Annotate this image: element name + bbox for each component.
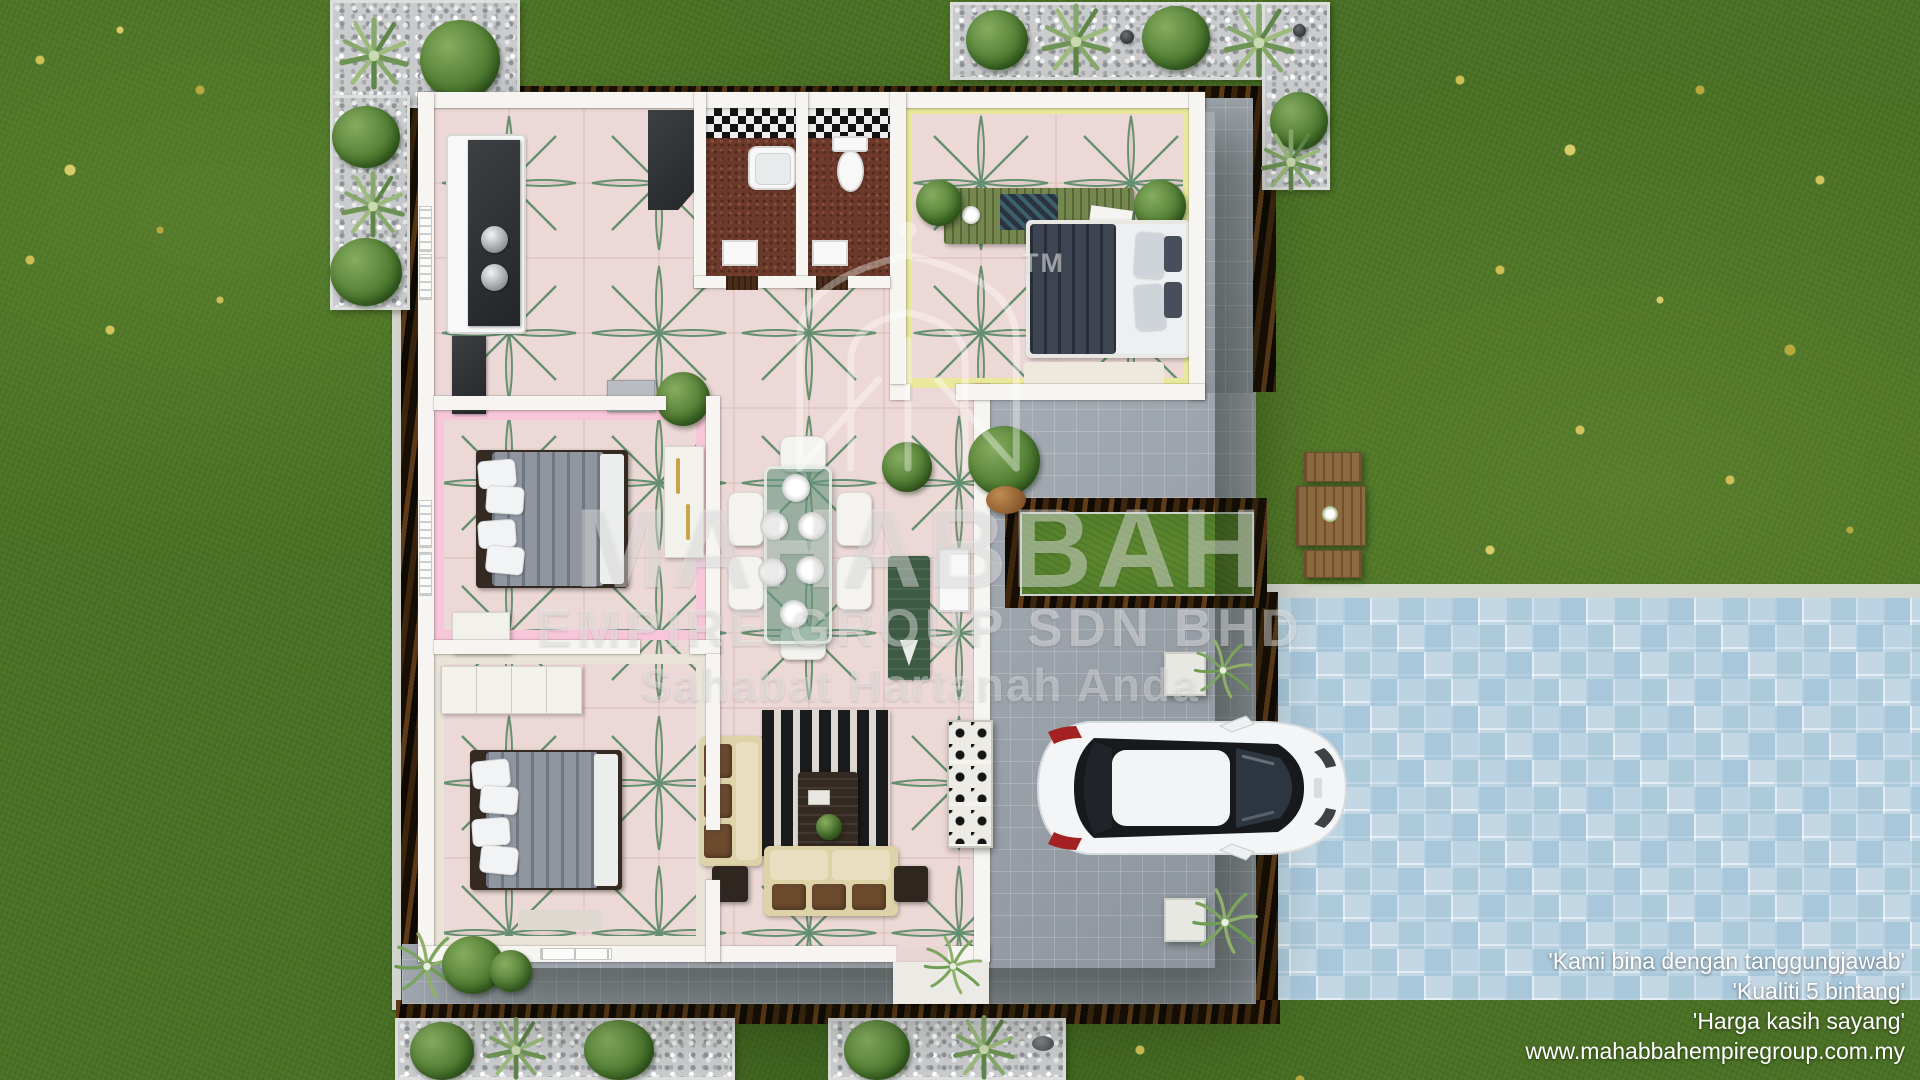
palm-plant [1188,884,1262,958]
bed-cushion [1164,236,1182,272]
garden-bush [332,106,400,168]
wall-pink-bedroom-top [434,396,666,410]
sofa-left-seat [736,742,758,860]
agave-plant [1220,0,1298,78]
footer-tagline-2: 'Kualiti 5 bintang' [1525,976,1905,1006]
footer-tagline-1: 'Kami bina dengan tanggungjawab' [1525,946,1905,976]
garden-bush [330,238,402,306]
outdoor-patterned-bench [947,720,993,848]
rear-bedroom-sheet [594,754,618,886]
bathtub-basin [755,153,791,185]
watermark-trademark: TM [1022,248,1065,279]
wall-yellow-bedroom-right [1189,92,1205,400]
agave-plant [1038,0,1114,76]
wall-exterior-top [418,92,1205,108]
watermark-brand: MAHABBAH [520,484,1320,613]
bed-pillow [485,485,525,516]
picnic-table-flowerpot [1322,506,1338,522]
wall-rear-bedroom-right [706,880,720,962]
agave-plant [336,14,412,90]
kitchen-window [419,254,432,300]
bed-cushion [1164,282,1182,318]
wall-bathroom-left [694,92,706,288]
pink-bedroom-window [419,500,432,548]
toilet-bowl [837,150,864,192]
garden-stone [1032,1036,1054,1051]
driveway-blue-tiles [1262,598,1920,1000]
sofa-backrest [832,850,890,880]
garden-bush [410,1022,474,1080]
garden-light-bollard [1293,24,1306,37]
bed-pillow [1132,231,1165,279]
bed-pillow [479,844,520,876]
garden-bush [844,1020,910,1080]
watermark-brand-line2: EMPIRE GROUP SDN BHD [520,598,1320,659]
watermark-logo [758,222,1058,478]
garden-light-bollard [1120,30,1134,44]
bed-pillow [1132,283,1165,331]
bathroom-1-door-threshold [726,276,758,290]
porch-bush [490,950,532,992]
bathroom-1-checker-wall [706,108,796,138]
garden-bush [420,20,500,100]
footer-taglines: 'Kami bina dengan tanggungjawab' 'Kualit… [1525,946,1905,1066]
bed-pillow [479,784,519,815]
wall-bathroom-bottom [694,276,726,288]
rear-bedroom-window [540,948,612,960]
footer-website: www.mahabbahempiregroup.com.my [1525,1036,1905,1066]
garden-bush [584,1020,654,1080]
aerial-house-render: TM MAHABBAH EMPIRE GROUP SDN BHD Sahabat… [0,0,1920,1080]
sofa-cushion [852,884,886,910]
sofa-backrest [770,850,828,880]
agave-plant [338,168,408,238]
agave-plant [476,1014,556,1080]
sofa-cushion [772,884,806,910]
footer-tagline-3: 'Harga kasih sayang' [1525,1006,1905,1036]
cooking-pot [481,226,508,253]
bedroom-plant [916,180,962,226]
white-car [1028,714,1350,862]
kitchen-window [419,206,432,252]
bed-pillow [471,817,511,848]
coffee-table-book [808,790,830,805]
rear-bedroom-rug [518,910,602,930]
garden-bush [1142,6,1210,70]
cooking-pot [481,264,508,291]
agave-plant [1258,126,1324,192]
driveway-curb [1262,584,1920,598]
palm-plant [920,932,986,998]
picnic-bench-top [1304,452,1362,482]
agave-plant [942,1012,1026,1080]
lawn-leaves-left [0,0,300,430]
left-garden-curb [392,298,401,1010]
coffee-table-plant [816,814,842,840]
garden-bush [966,10,1028,70]
pink-bedroom-window [419,552,432,596]
side-table [894,866,928,902]
watermark-slogan: Sahabat Hartanah Anda [520,658,1320,712]
sofa-cushion [812,884,846,910]
bathroom-2-checker-wall [808,108,890,138]
bathroom-1-vanity [722,240,758,266]
lawn-leaves-right [1400,30,1920,600]
